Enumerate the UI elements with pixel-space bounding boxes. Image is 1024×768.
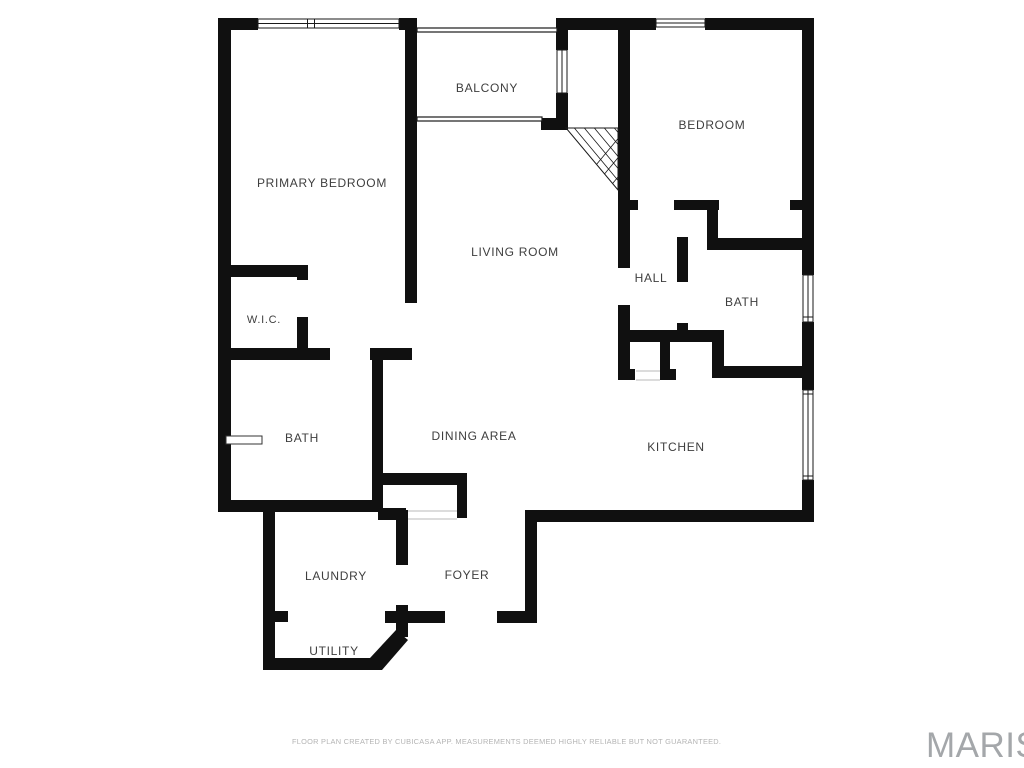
wall bbox=[707, 238, 814, 250]
wall bbox=[618, 200, 638, 210]
floorplan-page: BALCONYPRIMARY BEDROOMBEDROOMLIVING ROOM… bbox=[0, 0, 1024, 768]
wall bbox=[705, 18, 814, 30]
wall bbox=[660, 369, 676, 380]
wall bbox=[618, 330, 723, 342]
wall bbox=[457, 473, 467, 518]
wall bbox=[405, 18, 417, 303]
wall bbox=[525, 510, 814, 522]
wall bbox=[677, 237, 688, 282]
wall bbox=[541, 118, 568, 130]
room-label-bedroom: BEDROOM bbox=[679, 118, 746, 132]
wall bbox=[263, 658, 377, 670]
room-label-foyer: FOYER bbox=[445, 568, 490, 582]
wall bbox=[218, 265, 308, 277]
wall bbox=[712, 366, 814, 378]
wall bbox=[525, 510, 537, 623]
wall bbox=[556, 18, 568, 50]
wall bbox=[618, 18, 630, 268]
wall bbox=[263, 611, 288, 622]
wall bbox=[370, 348, 412, 360]
wall bbox=[556, 18, 656, 30]
room-label-balcony: BALCONY bbox=[456, 81, 518, 95]
room-label-utility: UTILITY bbox=[309, 644, 359, 658]
bath-fixture-bar bbox=[226, 436, 262, 444]
room-label-wic: W.I.C. bbox=[247, 314, 281, 326]
disclaimer-text: FLOOR PLAN CREATED BY CUBICASA APP. MEAS… bbox=[292, 737, 721, 746]
room-label-laundry: LAUNDRY bbox=[305, 569, 367, 583]
wall bbox=[618, 305, 630, 380]
wall bbox=[378, 473, 467, 485]
room-label-dining-area: DINING AREA bbox=[431, 429, 516, 443]
balcony-railing-top bbox=[417, 28, 557, 32]
hall-closet-threshold bbox=[636, 371, 660, 380]
wall bbox=[618, 369, 635, 380]
wall bbox=[263, 512, 275, 670]
wall bbox=[218, 348, 330, 360]
room-label-primary-bedroom: PRIMARY BEDROOM bbox=[257, 176, 387, 190]
wall bbox=[707, 200, 718, 242]
wall bbox=[802, 18, 814, 275]
wall bbox=[497, 611, 537, 623]
wall bbox=[385, 611, 445, 623]
wall bbox=[802, 322, 814, 390]
floorplan-drawing bbox=[0, 0, 1024, 768]
diagonal-wall bbox=[370, 630, 408, 670]
room-label-hall: HALL bbox=[635, 271, 668, 285]
room-label-bath-hall: BATH bbox=[725, 295, 759, 309]
room-label-living-room: LIVING ROOM bbox=[471, 245, 559, 259]
room-label-bath-primary: BATH bbox=[285, 431, 319, 445]
wall bbox=[378, 508, 406, 520]
wall bbox=[218, 500, 383, 512]
wall bbox=[790, 200, 814, 210]
maris-logo: MARIS bbox=[926, 726, 1024, 766]
stairs-hatch bbox=[536, 118, 686, 213]
wall bbox=[372, 352, 383, 512]
wall bbox=[297, 265, 308, 280]
balcony-railing-bottom bbox=[417, 117, 542, 121]
foyer-closet-threshold bbox=[408, 511, 457, 519]
room-label-kitchen: KITCHEN bbox=[647, 440, 705, 454]
